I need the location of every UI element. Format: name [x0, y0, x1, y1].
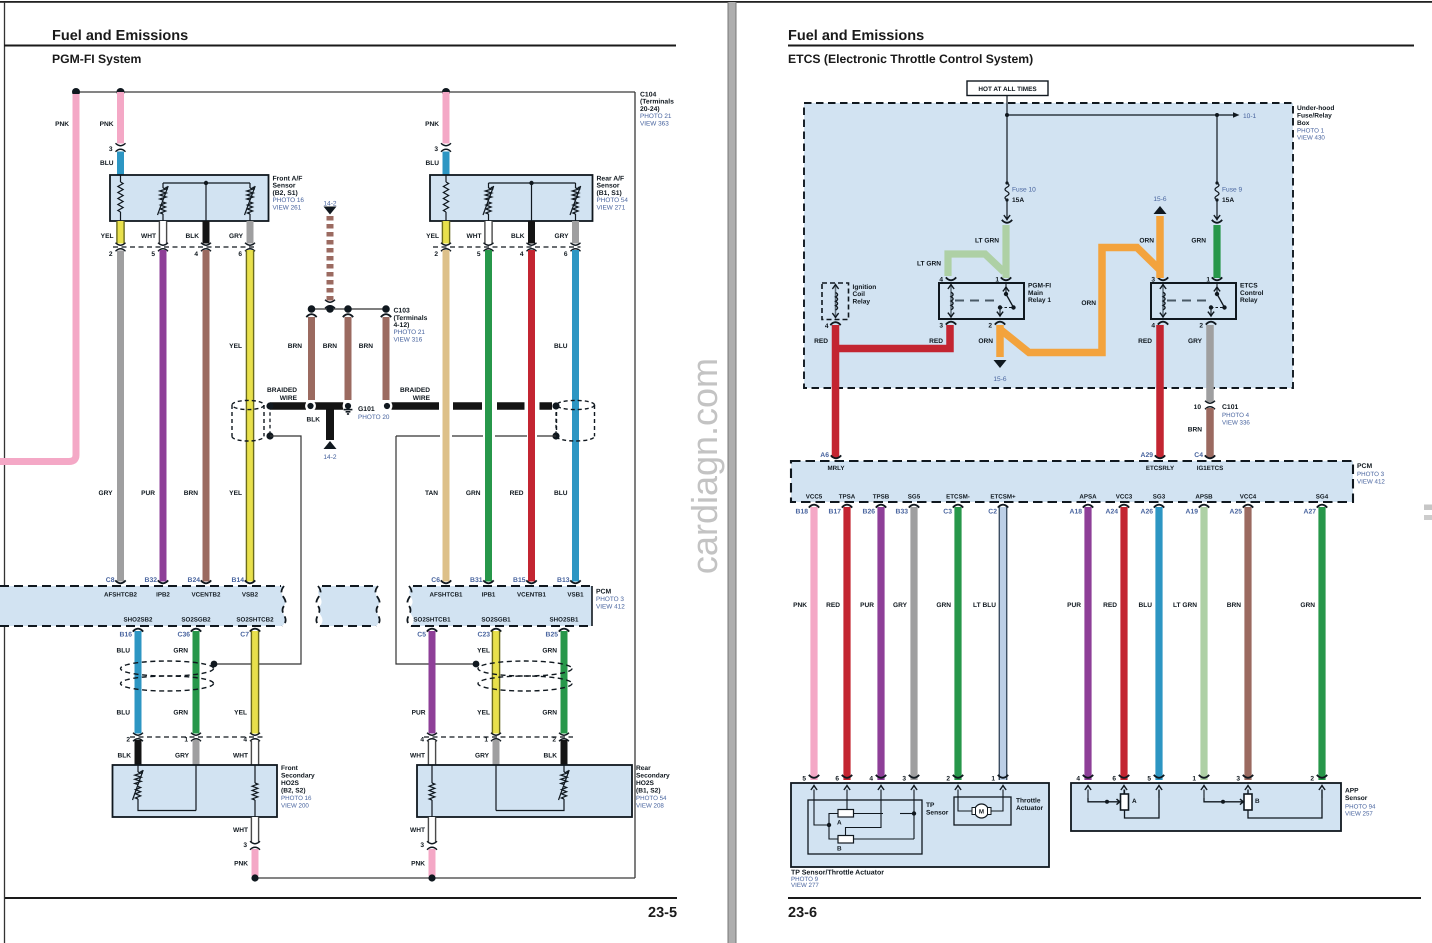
- svg-text:C2: C2: [988, 509, 997, 516]
- svg-text:PNK: PNK: [793, 602, 807, 609]
- svg-text:PUR: PUR: [1067, 602, 1081, 609]
- svg-text:15A: 15A: [1222, 197, 1234, 204]
- svg-text:BLU: BLU: [1138, 602, 1152, 609]
- svg-text:15-6: 15-6: [1153, 196, 1167, 203]
- svg-text:6: 6: [238, 251, 242, 258]
- svg-text:4: 4: [194, 251, 198, 258]
- svg-text:SHO2SB2: SHO2SB2: [124, 617, 153, 624]
- svg-text:RED: RED: [814, 338, 828, 345]
- svg-text:GRN: GRN: [936, 602, 951, 609]
- svg-text:TPSA: TPSA: [839, 494, 856, 501]
- svg-text:A27: A27: [1304, 509, 1317, 516]
- svg-text:C36: C36: [178, 632, 191, 639]
- svg-text:PHOTO 54: PHOTO 54: [636, 795, 667, 802]
- svg-text:VIEW 336: VIEW 336: [1222, 420, 1250, 427]
- svg-text:B24: B24: [188, 577, 201, 584]
- svg-text:AFSHTCB1: AFSHTCB1: [429, 592, 463, 599]
- svg-text:4: 4: [1076, 776, 1080, 783]
- svg-text:Rear A/F: Rear A/F: [597, 176, 625, 183]
- svg-text:A6: A6: [820, 452, 829, 459]
- svg-text:A: A: [837, 820, 842, 827]
- svg-text:SG4: SG4: [1316, 494, 1329, 501]
- svg-text:PHOTO 3: PHOTO 3: [596, 596, 624, 603]
- svg-text:1: 1: [484, 737, 488, 744]
- svg-text:Ignition: Ignition: [853, 284, 877, 291]
- svg-text:6: 6: [564, 251, 568, 258]
- svg-text:(B2, S2): (B2, S2): [281, 788, 306, 795]
- svg-text:Sensor: Sensor: [926, 810, 949, 817]
- svg-text:GRN: GRN: [173, 648, 188, 655]
- svg-text:PHOTO 94: PHOTO 94: [1345, 804, 1376, 811]
- svg-text:YEL: YEL: [477, 710, 490, 717]
- svg-text:IG1ETCS: IG1ETCS: [1197, 465, 1223, 472]
- svg-text:1: 1: [995, 277, 999, 284]
- svg-text:6: 6: [835, 776, 839, 783]
- svg-text:BLK: BLK: [543, 753, 557, 760]
- svg-text:Main: Main: [1028, 290, 1043, 297]
- svg-text:Relay: Relay: [853, 299, 871, 306]
- svg-text:Coil: Coil: [853, 291, 866, 298]
- svg-text:3: 3: [902, 776, 906, 783]
- svg-text:Sensor: Sensor: [597, 183, 620, 190]
- svg-text:BRAIDED: BRAIDED: [400, 387, 430, 394]
- svg-text:Box: Box: [1297, 120, 1310, 127]
- svg-text:VCENTB1: VCENTB1: [517, 592, 546, 599]
- svg-text:HO2S: HO2S: [636, 780, 655, 787]
- svg-text:PNK: PNK: [100, 121, 114, 128]
- svg-text:A29: A29: [1141, 452, 1154, 459]
- svg-text:B14: B14: [232, 577, 245, 584]
- svg-text:B33: B33: [896, 509, 909, 516]
- svg-text:4-12): 4-12): [394, 322, 410, 329]
- svg-text:VIEW 208: VIEW 208: [636, 803, 664, 810]
- svg-text:B16: B16: [120, 632, 133, 639]
- svg-text:TP: TP: [926, 802, 935, 809]
- svg-text:BLU: BLU: [554, 343, 568, 350]
- svg-text:ETCSM+: ETCSM+: [990, 494, 1016, 501]
- svg-text:PHOTO 1: PHOTO 1: [1297, 128, 1325, 135]
- svg-text:BRN: BRN: [323, 343, 338, 350]
- svg-text:B32: B32: [145, 577, 158, 584]
- svg-text:B: B: [837, 846, 842, 853]
- svg-text:2: 2: [109, 251, 113, 258]
- svg-text:SO2SHTCB2: SO2SHTCB2: [236, 617, 274, 624]
- svg-text:BLK: BLK: [185, 233, 199, 240]
- svg-text:ETCSM-: ETCSM-: [946, 494, 970, 501]
- svg-text:BLU: BLU: [425, 160, 439, 167]
- svg-text:2: 2: [1310, 776, 1314, 783]
- svg-text:ORN: ORN: [1139, 238, 1154, 245]
- svg-text:GRY: GRY: [98, 490, 113, 497]
- svg-text:1: 1: [991, 776, 995, 783]
- svg-text:B13: B13: [557, 577, 570, 584]
- svg-text:4: 4: [520, 251, 524, 258]
- svg-text:BRN: BRN: [1188, 427, 1203, 434]
- svg-text:SO2SGB2: SO2SGB2: [181, 617, 211, 624]
- svg-text:C3: C3: [943, 509, 952, 516]
- svg-text:C104: C104: [640, 91, 656, 98]
- svg-text:WHT: WHT: [233, 753, 248, 760]
- svg-text:PHOTO 20: PHOTO 20: [358, 414, 390, 421]
- svg-text:PHOTO 16: PHOTO 16: [273, 197, 305, 204]
- svg-text:WIRE: WIRE: [280, 395, 298, 402]
- svg-text:B31: B31: [470, 577, 483, 584]
- svg-text:PHOTO 3: PHOTO 3: [1357, 471, 1385, 478]
- svg-text:10: 10: [1194, 404, 1202, 411]
- svg-text:PUR: PUR: [141, 490, 155, 497]
- svg-text:GRN: GRN: [542, 710, 557, 717]
- svg-text:MRLY: MRLY: [828, 465, 846, 472]
- svg-text:BRN: BRN: [1227, 602, 1242, 609]
- svg-text:4: 4: [825, 323, 829, 330]
- svg-text:VCENTB2: VCENTB2: [192, 592, 221, 599]
- svg-text:VIEW 412: VIEW 412: [1357, 479, 1385, 486]
- svg-text:VIEW 316: VIEW 316: [394, 336, 423, 343]
- svg-text:GRY: GRY: [175, 753, 190, 760]
- svg-text:PCM: PCM: [596, 589, 611, 596]
- svg-text:PUR: PUR: [412, 710, 426, 717]
- svg-text:Actuator: Actuator: [1016, 805, 1044, 812]
- svg-text:15A: 15A: [1012, 197, 1024, 204]
- svg-text:A: A: [1132, 798, 1137, 805]
- svg-text:WHT: WHT: [466, 233, 481, 240]
- svg-text:GRN: GRN: [173, 710, 188, 717]
- svg-text:WHT: WHT: [141, 233, 156, 240]
- svg-text:GRN: GRN: [1191, 238, 1206, 245]
- svg-text:10-1: 10-1: [1243, 113, 1257, 120]
- svg-text:TPSB: TPSB: [873, 494, 890, 501]
- svg-text:5: 5: [151, 251, 155, 258]
- svg-text:LT GRN: LT GRN: [975, 238, 999, 245]
- svg-text:Rear: Rear: [636, 765, 651, 772]
- svg-text:4: 4: [420, 737, 424, 744]
- svg-text:VCC4: VCC4: [1240, 494, 1257, 501]
- svg-text:VCC3: VCC3: [1116, 494, 1133, 501]
- svg-text:A25: A25: [1230, 509, 1243, 516]
- svg-text:APP: APP: [1345, 788, 1359, 795]
- svg-text:(B1, S1): (B1, S1): [597, 190, 622, 197]
- svg-text:WHT: WHT: [410, 827, 425, 834]
- svg-text:Fuse 9: Fuse 9: [1222, 187, 1242, 194]
- svg-text:TAN: TAN: [425, 490, 438, 497]
- svg-text:3: 3: [1236, 776, 1240, 783]
- svg-text:14-2: 14-2: [323, 201, 337, 208]
- svg-text:Front: Front: [281, 765, 299, 772]
- svg-text:2: 2: [434, 251, 438, 258]
- svg-text:BLK: BLK: [511, 233, 525, 240]
- svg-text:VIEW 412: VIEW 412: [596, 604, 625, 611]
- svg-text:4: 4: [869, 776, 873, 783]
- svg-text:Control: Control: [1240, 290, 1264, 297]
- svg-text:Fuse/Relay: Fuse/Relay: [1297, 113, 1332, 120]
- svg-text:GRN: GRN: [1300, 602, 1315, 609]
- svg-text:RED: RED: [929, 338, 943, 345]
- svg-text:(Terminals: (Terminals: [640, 99, 674, 106]
- svg-text:WHT: WHT: [410, 753, 425, 760]
- svg-text:HO2S: HO2S: [281, 780, 300, 787]
- svg-text:G101: G101: [358, 406, 375, 413]
- svg-text:C7: C7: [240, 632, 249, 639]
- svg-text:PGM-FI: PGM-FI: [1028, 283, 1051, 290]
- svg-text:C8: C8: [106, 577, 115, 584]
- svg-text:2: 2: [988, 323, 992, 330]
- svg-text:C4: C4: [1194, 452, 1203, 459]
- svg-text:(B1, S2): (B1, S2): [636, 788, 661, 795]
- svg-text:SG5: SG5: [908, 494, 921, 501]
- svg-text:(B2, S1): (B2, S1): [273, 190, 298, 197]
- svg-text:IPB2: IPB2: [156, 592, 170, 599]
- svg-text:B15: B15: [513, 577, 526, 584]
- svg-text:BRN: BRN: [288, 343, 303, 350]
- svg-text:Fuel and Emissions: Fuel and Emissions: [52, 28, 188, 44]
- svg-text:A19: A19: [1186, 509, 1199, 516]
- svg-text:1: 1: [1192, 776, 1196, 783]
- svg-text:Throttle: Throttle: [1016, 798, 1041, 805]
- svg-text:ETCSRLY: ETCSRLY: [1146, 465, 1175, 472]
- svg-text:YEL: YEL: [426, 233, 439, 240]
- svg-text:VIEW 271: VIEW 271: [597, 204, 626, 211]
- svg-text:BRN: BRN: [184, 490, 199, 497]
- svg-text:VIEW 277: VIEW 277: [791, 882, 819, 889]
- svg-text:23-5: 23-5: [648, 905, 677, 921]
- svg-text:Fuel and Emissions: Fuel and Emissions: [788, 28, 924, 44]
- svg-text:VIEW 430: VIEW 430: [1297, 135, 1325, 142]
- svg-text:A26: A26: [1141, 509, 1154, 516]
- svg-text:C101: C101: [1222, 404, 1238, 411]
- svg-text:LT GRN: LT GRN: [917, 261, 941, 268]
- svg-text:GRY: GRY: [893, 602, 908, 609]
- svg-text:3: 3: [1151, 277, 1155, 284]
- svg-text:2: 2: [126, 737, 130, 744]
- svg-text:cardiagn.com: cardiagn.com: [684, 358, 725, 574]
- svg-text:VIEW 261: VIEW 261: [273, 204, 302, 211]
- svg-text:BLU: BLU: [116, 710, 130, 717]
- svg-text:VIEW 363: VIEW 363: [640, 120, 669, 127]
- svg-text:Front A/F: Front A/F: [273, 176, 303, 183]
- svg-text:ORN: ORN: [978, 338, 993, 345]
- svg-text:VSB2: VSB2: [242, 592, 259, 599]
- svg-text:A24: A24: [1106, 509, 1119, 516]
- svg-text:3: 3: [109, 146, 113, 153]
- svg-text:VIEW 257: VIEW 257: [1345, 811, 1373, 818]
- svg-text:APSA: APSA: [1079, 494, 1097, 501]
- svg-text:BRAIDED: BRAIDED: [267, 387, 297, 394]
- svg-text:B25: B25: [546, 632, 559, 639]
- svg-text:23-6: 23-6: [788, 905, 817, 921]
- svg-text:1: 1: [1206, 277, 1210, 284]
- svg-text:PHOTO 21: PHOTO 21: [394, 329, 426, 336]
- svg-text:Fuse 10: Fuse 10: [1012, 187, 1036, 194]
- svg-text:PNK: PNK: [55, 121, 69, 128]
- svg-text:5: 5: [802, 776, 806, 783]
- svg-text:20-24): 20-24): [640, 106, 660, 113]
- svg-text:RED: RED: [1103, 602, 1117, 609]
- svg-text:6: 6: [1112, 776, 1116, 783]
- svg-text:PHOTO 21: PHOTO 21: [640, 113, 672, 120]
- svg-text:C23: C23: [478, 632, 491, 639]
- svg-text:PNK: PNK: [411, 861, 425, 868]
- svg-text:GRY: GRY: [229, 233, 244, 240]
- svg-text:YEL: YEL: [477, 648, 490, 655]
- svg-text:B26: B26: [863, 509, 876, 516]
- svg-text:RED: RED: [1138, 338, 1152, 345]
- svg-text:Relay: Relay: [1240, 297, 1258, 304]
- svg-text:B17: B17: [829, 509, 842, 516]
- svg-text:GRN: GRN: [542, 648, 557, 655]
- svg-text:4: 4: [939, 277, 943, 284]
- svg-text:YEL: YEL: [234, 710, 247, 717]
- svg-text:APSB: APSB: [1195, 494, 1213, 501]
- svg-text:Secondary: Secondary: [636, 773, 670, 780]
- svg-text:YEL: YEL: [229, 490, 242, 497]
- svg-text:2: 2: [946, 776, 950, 783]
- svg-text:IPB1: IPB1: [482, 592, 496, 599]
- svg-text:5: 5: [477, 251, 481, 258]
- svg-text:PGM-FI System: PGM-FI System: [52, 52, 142, 66]
- svg-text:3: 3: [434, 146, 438, 153]
- svg-text:(Terminals: (Terminals: [394, 315, 428, 322]
- svg-text:GRY: GRY: [475, 753, 490, 760]
- svg-text:C103: C103: [394, 308, 410, 315]
- svg-text:PNK: PNK: [234, 861, 248, 868]
- svg-text:BLK: BLK: [306, 417, 320, 424]
- svg-text:C6: C6: [431, 577, 440, 584]
- svg-text:RED: RED: [510, 490, 524, 497]
- svg-text:2: 2: [1199, 323, 1203, 330]
- svg-text:4: 4: [1151, 323, 1155, 330]
- svg-text:C5: C5: [417, 632, 426, 639]
- svg-text:Sensor: Sensor: [1345, 795, 1368, 802]
- svg-text:BLK: BLK: [117, 753, 131, 760]
- svg-text:SHO2SB1: SHO2SB1: [550, 617, 579, 624]
- svg-text:3: 3: [243, 842, 247, 849]
- svg-text:3: 3: [420, 842, 424, 849]
- svg-text:BLU: BLU: [116, 648, 130, 655]
- svg-text:LT BLU: LT BLU: [973, 602, 996, 609]
- svg-text:BLU: BLU: [100, 160, 114, 167]
- svg-text:WIRE: WIRE: [413, 395, 431, 402]
- svg-text:B: B: [1255, 798, 1260, 805]
- svg-text:B18: B18: [796, 509, 809, 516]
- svg-text:Sensor: Sensor: [273, 183, 296, 190]
- svg-text:YEL: YEL: [229, 343, 242, 350]
- svg-text:BLU: BLU: [554, 490, 568, 497]
- svg-text:2: 2: [552, 737, 556, 744]
- svg-text:1: 1: [184, 737, 188, 744]
- svg-text:RED: RED: [826, 602, 840, 609]
- svg-text:PCM: PCM: [1357, 463, 1372, 470]
- svg-text:SO2SHTCB1: SO2SHTCB1: [413, 617, 451, 624]
- svg-text:VIEW 200: VIEW 200: [281, 803, 309, 810]
- svg-text:PUR: PUR: [860, 602, 874, 609]
- svg-text:GRY: GRY: [1188, 338, 1203, 345]
- svg-text:Under-hood: Under-hood: [1297, 105, 1334, 112]
- svg-text:VSB1: VSB1: [567, 592, 584, 599]
- svg-text:SO2SGB1: SO2SGB1: [481, 617, 511, 624]
- svg-text:A18: A18: [1070, 509, 1083, 516]
- svg-text:ETCS (Electronic Throttle Cont: ETCS (Electronic Throttle Control System…: [788, 52, 1033, 66]
- svg-text:VCC5: VCC5: [806, 494, 823, 501]
- svg-text:4: 4: [243, 737, 247, 744]
- svg-text:PNK: PNK: [425, 121, 439, 128]
- svg-text:HOT AT ALL TIMES: HOT AT ALL TIMES: [978, 86, 1037, 93]
- svg-text:M: M: [979, 809, 984, 816]
- svg-text:PHOTO 16: PHOTO 16: [281, 795, 312, 802]
- svg-text:3: 3: [939, 323, 943, 330]
- svg-text:Secondary: Secondary: [281, 773, 315, 780]
- svg-text:PHOTO 4: PHOTO 4: [1222, 412, 1250, 419]
- svg-text:PHOTO 54: PHOTO 54: [597, 197, 629, 204]
- svg-text:5: 5: [1147, 776, 1151, 783]
- svg-text:YEL: YEL: [101, 233, 114, 240]
- svg-text:14-2: 14-2: [323, 454, 337, 461]
- svg-text:AFSHTCB2: AFSHTCB2: [104, 592, 138, 599]
- svg-text:BRN: BRN: [359, 343, 374, 350]
- svg-text:GRY: GRY: [554, 233, 569, 240]
- svg-text:ETCS: ETCS: [1240, 283, 1258, 290]
- svg-text:GRN: GRN: [466, 490, 481, 497]
- svg-text:ORN: ORN: [1081, 300, 1096, 307]
- svg-text:SG3: SG3: [1153, 494, 1166, 501]
- svg-text:Relay 1: Relay 1: [1028, 297, 1051, 304]
- svg-text:LT GRN: LT GRN: [1173, 602, 1197, 609]
- svg-text:15-6: 15-6: [993, 376, 1007, 383]
- svg-text:WHT: WHT: [233, 827, 248, 834]
